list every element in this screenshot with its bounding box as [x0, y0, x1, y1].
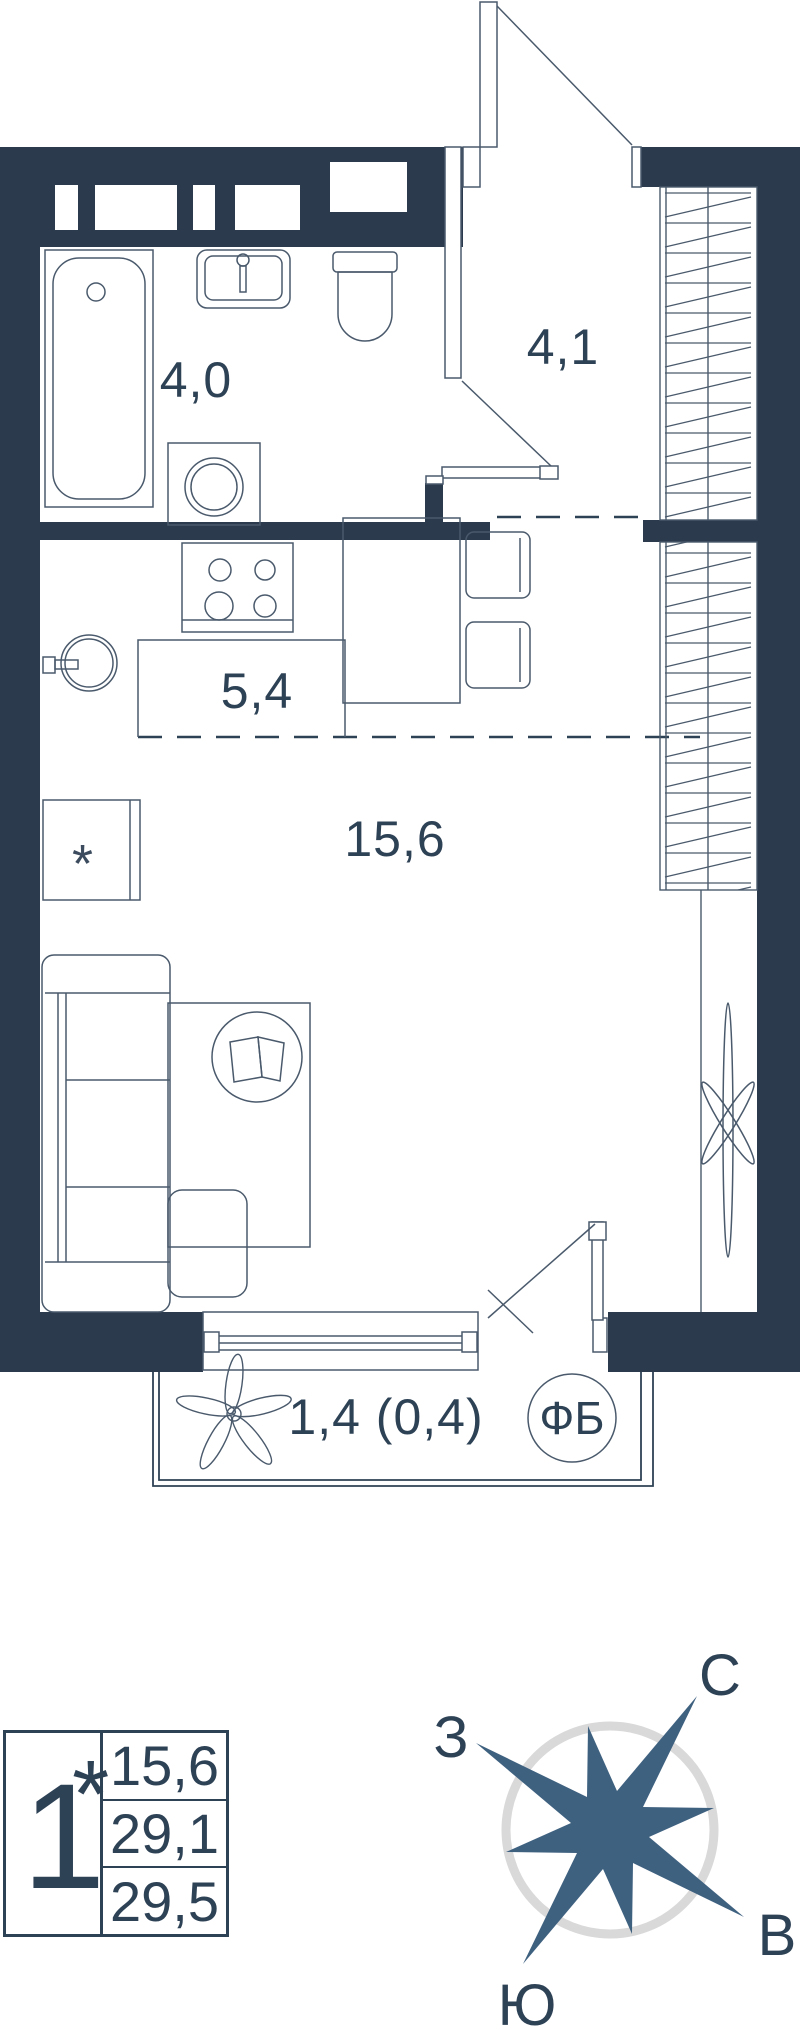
balcony-window [203, 1312, 478, 1370]
compass-south-label: Ю [498, 1973, 557, 2030]
sofa [42, 955, 170, 1312]
unit-info-table: 1 * 15,6 29,1 29,5 [3, 1730, 229, 1937]
unit-type-star: * [72, 1747, 109, 1843]
desk-chair [212, 1012, 302, 1102]
compass-north-label: С [699, 1643, 741, 1708]
compass-east-label: В [758, 1903, 797, 1968]
stove [182, 543, 293, 632]
balcony-door-jamb [593, 1318, 607, 1352]
hall-south-wall [643, 520, 757, 542]
open-book-icon [258, 1037, 284, 1081]
kitchen-sink [43, 635, 117, 691]
dining-chair [466, 532, 530, 598]
unit-areas-column: 15,6 29,1 29,5 [103, 1733, 226, 1934]
hallway-area-label: 4,1 [527, 319, 600, 375]
entrance-door-leaf [480, 2, 497, 147]
toilet [333, 252, 397, 341]
floorplan-page: * [0, 0, 800, 2030]
kitchen-area-label: 5,4 [221, 663, 294, 719]
dining-table [343, 518, 460, 703]
total-area-value: 29,5 [103, 1868, 226, 1934]
compass-west-label: З [433, 1705, 468, 1770]
entrance-door-swing [497, 6, 632, 145]
balcony-door [488, 1222, 607, 1352]
balcony-door-swing [488, 1224, 595, 1318]
living-area-value: 15,6 [103, 1733, 226, 1801]
unit-type-cell: 1 * [6, 1733, 103, 1934]
open-book-icon [230, 1037, 262, 1082]
compass-rose: С З В Ю [433, 1643, 796, 2030]
bottom-wall-left [0, 1312, 203, 1372]
balcony-area-label: 1,4 (0,4) [288, 1389, 483, 1445]
bathroom-door-swing [462, 381, 551, 466]
area-without-balcony-value: 29,1 [103, 1801, 226, 1869]
compass-star-icon [476, 1696, 744, 1964]
french-balcony-label: ФБ [539, 1392, 604, 1444]
dining-chair [466, 622, 530, 688]
entrance-door [463, 2, 641, 187]
entrance-door-jamb-right [632, 147, 641, 187]
radiator-plant-icon [697, 1003, 760, 1257]
desk [168, 1003, 310, 1247]
bathroom-door [426, 381, 558, 484]
bathtub [45, 250, 153, 507]
entrance-door-jamb-left [463, 147, 480, 187]
right-wall [757, 147, 800, 1372]
floorplan-drawing: * [0, 0, 800, 2030]
sofa-ottoman [168, 1190, 247, 1297]
left-wall [0, 147, 40, 1372]
washing-machine [168, 443, 260, 525]
living-room-area-label: 15,6 [344, 811, 445, 867]
bathroom-sink [197, 250, 290, 308]
fridge-freezer-symbol: * [72, 834, 93, 894]
bottom-wall-right [608, 1312, 800, 1372]
bathroom-area-label: 4,0 [160, 352, 233, 408]
french-balcony-badge: ФБ [528, 1374, 616, 1462]
bathroom-partition-wall [445, 147, 461, 378]
